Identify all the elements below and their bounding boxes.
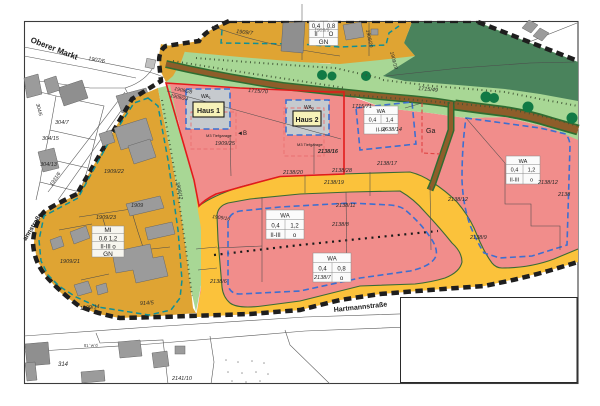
svg-text:◄B: ◄B xyxy=(237,131,247,137)
svg-text:0,4: 0,4 xyxy=(318,267,327,273)
svg-text:1909/22: 1909/22 xyxy=(104,169,124,175)
svg-text:1,2: 1,2 xyxy=(528,168,536,174)
svg-text:1909/9: 1909/9 xyxy=(314,28,330,34)
svg-text:WA: WA xyxy=(327,257,336,263)
svg-text:1909/23: 1909/23 xyxy=(96,215,117,221)
svg-text:M3 Tiefgarage: M3 Tiefgarage xyxy=(297,142,323,147)
svg-text:II-III: II-III xyxy=(510,178,520,184)
svg-text:2138/8: 2138/8 xyxy=(331,222,350,228)
svg-text:2638/14: 2638/14 xyxy=(381,127,402,133)
svg-text:Haus 2: Haus 2 xyxy=(296,117,319,124)
svg-text:0,4: 0,4 xyxy=(369,118,377,124)
svg-text:Ga: Ga xyxy=(426,128,435,135)
svg-text:0,4: 0,4 xyxy=(271,224,280,230)
svg-text:2138/7: 2138/7 xyxy=(313,275,332,281)
svg-text:1909: 1909 xyxy=(131,203,143,209)
svg-text:2141/10: 2141/10 xyxy=(171,376,193,382)
svg-text:0,8: 0,8 xyxy=(337,267,346,273)
svg-text:304/13: 304/13 xyxy=(40,162,58,168)
svg-text:o: o xyxy=(530,178,533,184)
svg-text:914/5: 914/5 xyxy=(140,300,155,307)
svg-text:M3 Tiefgarage: M3 Tiefgarage xyxy=(206,133,232,138)
svg-text:314: 314 xyxy=(58,362,69,368)
svg-text:2138/12: 2138/12 xyxy=(447,197,468,203)
svg-text:01 ʻｗʻd: 01 ʻｗʻd xyxy=(84,343,98,348)
svg-text:Haus 1: Haus 1 xyxy=(197,108,220,115)
svg-text:2138/20: 2138/20 xyxy=(282,170,304,176)
svg-text:1,2: 1,2 xyxy=(290,224,299,230)
svg-text:2138: 2138 xyxy=(557,192,571,198)
svg-text:2138/12: 2138/12 xyxy=(537,180,558,186)
svg-text:MI: MI xyxy=(104,227,111,234)
svg-text:GN: GN xyxy=(319,39,329,46)
svg-text:1715/71: 1715/71 xyxy=(352,104,372,110)
svg-text:304/15: 304/15 xyxy=(42,136,60,142)
svg-text:2138/16: 2138/16 xyxy=(317,149,339,155)
svg-text:304/7: 304/7 xyxy=(55,120,70,126)
svg-text:GN: GN xyxy=(103,251,113,258)
svg-text:2138/9: 2138/9 xyxy=(469,235,487,241)
svg-text:O: O xyxy=(329,32,334,38)
svg-text:1,4: 1,4 xyxy=(386,118,394,124)
svg-text:WA: WA xyxy=(280,214,289,220)
svg-text:0,4: 0,4 xyxy=(511,168,519,174)
svg-text:2138/6: 2138/6 xyxy=(209,279,228,285)
svg-text:2138/11: 2138/11 xyxy=(335,203,355,209)
svg-text:WA: WA xyxy=(377,109,386,115)
svg-text:WA: WA xyxy=(519,159,528,165)
svg-text:0,6 1,2: 0,6 1,2 xyxy=(99,237,118,243)
svg-text:2138/17: 2138/17 xyxy=(376,161,398,167)
svg-text:II-III: II-III xyxy=(270,233,281,239)
svg-text:1909/21: 1909/21 xyxy=(60,259,80,265)
svg-text:2138/19: 2138/19 xyxy=(323,180,344,186)
svg-text:1909/25: 1909/25 xyxy=(215,141,236,147)
svg-text:II-III o: II-III o xyxy=(100,245,116,251)
svg-text:2138/28: 2138/28 xyxy=(331,168,353,174)
